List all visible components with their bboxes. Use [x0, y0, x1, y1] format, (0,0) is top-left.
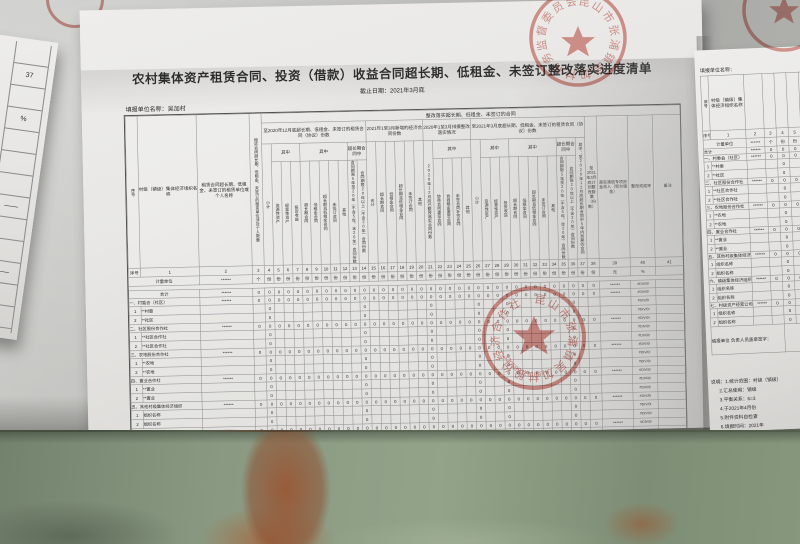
table-cell: 份	[464, 270, 474, 279]
table-cell	[514, 377, 524, 386]
table-cell: 20	[416, 262, 426, 271]
table-cell: 0	[341, 320, 351, 328]
table-cell: 0	[504, 377, 514, 386]
table-cell	[389, 310, 399, 319]
table-cell	[277, 417, 287, 426]
table-cell	[324, 381, 334, 390]
table-cell	[381, 379, 391, 388]
table-cell: 0	[350, 286, 360, 294]
table-cell	[543, 411, 553, 420]
table-cell: 0	[266, 330, 276, 339]
table-cell: 0	[503, 317, 513, 325]
table-cell: 21	[426, 262, 436, 271]
table-cell: 0	[388, 285, 398, 293]
table-cell: 0	[521, 282, 531, 290]
table-cell: 32	[530, 260, 540, 269]
table-cell: 28	[492, 261, 502, 270]
table-cell	[295, 390, 305, 399]
table-cell	[551, 350, 561, 359]
table-cell: 0	[362, 389, 372, 398]
table-cell: 0	[407, 285, 417, 293]
table-cell: 份	[321, 273, 331, 282]
table-cell: 0	[569, 289, 579, 297]
table-cell	[494, 360, 504, 369]
table-cell: 11	[331, 264, 341, 273]
table-cell: 0	[322, 321, 332, 329]
header-cell: 超长期合同中	[556, 137, 575, 155]
table-cell: 0	[418, 345, 428, 353]
table-cell: 0	[476, 377, 486, 386]
table-cell	[448, 404, 458, 413]
table-cell: 0	[505, 412, 515, 421]
table-cell: 0	[477, 421, 487, 429]
table-cell: 份	[331, 273, 341, 282]
table-cell: 0	[312, 295, 322, 303]
table-cell	[296, 407, 306, 416]
table-cell	[791, 182, 800, 191]
table-cell: 0	[266, 348, 276, 356]
table-cell	[285, 338, 295, 347]
table-cell: 0	[267, 391, 277, 400]
table-cell	[485, 377, 495, 386]
table-cell: 份	[302, 274, 312, 283]
table-cell: 0	[427, 309, 437, 318]
table-cell	[408, 310, 418, 319]
table-cell	[323, 338, 333, 347]
table-cell: 0	[370, 320, 380, 328]
table-cell: 18	[397, 263, 407, 272]
table-cell: 0	[475, 351, 485, 360]
table-cell	[438, 387, 448, 396]
table-cell	[333, 389, 343, 398]
table-cell: 份	[473, 270, 483, 279]
table-cell: 0	[293, 295, 303, 303]
table-cell: 0	[522, 316, 532, 324]
table-cell	[322, 303, 332, 312]
table-cell	[342, 354, 352, 363]
table-cell: 17	[388, 263, 398, 272]
table-cell: 0	[521, 290, 531, 298]
table-cell	[285, 364, 295, 373]
table-cell	[343, 380, 353, 389]
table-cell	[561, 376, 571, 385]
table-cell	[352, 354, 362, 363]
table-cell: 0	[464, 284, 474, 292]
table-cell	[333, 354, 343, 363]
table-cell: 0	[484, 343, 494, 351]
table-cell	[408, 336, 418, 345]
table-cell: 0	[371, 398, 381, 406]
table-cell	[370, 337, 380, 346]
table-cell	[448, 413, 458, 422]
table-cell: 份	[350, 273, 360, 282]
table-cell	[562, 411, 572, 420]
table-cell: 0	[313, 347, 323, 355]
table-cell	[295, 381, 305, 390]
table-cell	[371, 380, 381, 389]
table-cell	[342, 328, 352, 337]
table-cell: 16	[378, 263, 388, 272]
table-cell	[409, 379, 419, 388]
table-cell	[552, 376, 562, 385]
table-cell: 0	[457, 396, 467, 404]
table-cell: 份	[407, 271, 417, 280]
table-cell: 0	[504, 386, 514, 395]
table-cell: 0	[352, 372, 362, 380]
table-cell: 份	[445, 271, 455, 280]
table-cell: 0	[561, 368, 571, 376]
header-cell: 其中	[271, 143, 300, 162]
table-cell: 0	[438, 396, 448, 404]
table-cell	[794, 265, 800, 274]
table-cell	[285, 329, 295, 338]
table-cell: 0	[445, 292, 455, 300]
table-cell: 0	[324, 399, 334, 407]
table-cell: 0	[379, 285, 389, 293]
table-cell	[370, 311, 380, 320]
table-cell: 0	[369, 286, 379, 294]
header-cell: 至2021年3月底超长期、低租金、未签订的租赁合同（协议）份数	[470, 116, 584, 139]
table-cell	[791, 191, 800, 200]
table-cell: 0	[409, 397, 419, 405]
table-cell: 份	[274, 274, 284, 283]
table-cell: 0	[551, 368, 561, 376]
table-cell	[380, 353, 390, 362]
table-cell: 0	[294, 321, 304, 329]
table-cell: 0	[429, 413, 439, 422]
table-cell: 0	[333, 398, 343, 406]
table-cell	[313, 338, 323, 347]
table-cell: 0	[379, 319, 389, 327]
table-cell: 0	[342, 372, 352, 380]
table-cell: 0	[541, 342, 551, 350]
table-cell	[380, 362, 390, 371]
table-cell	[437, 361, 447, 370]
table-cell	[275, 330, 285, 339]
table-cell	[493, 299, 503, 308]
table-cell: 0	[360, 311, 370, 320]
table-cell	[590, 401, 602, 410]
table-cell	[380, 336, 390, 345]
table-cell	[286, 407, 296, 416]
table-cell	[590, 375, 602, 384]
table-cell: 0	[398, 293, 408, 301]
table-cell: 23	[445, 262, 455, 271]
table-cell	[371, 354, 381, 363]
table-cell	[277, 408, 287, 417]
table-cell	[796, 305, 800, 314]
table-cell: 0	[341, 286, 351, 294]
table-cell	[390, 379, 400, 388]
table-cell	[467, 404, 477, 413]
table-cell	[589, 349, 601, 358]
table-cell: 0	[569, 306, 579, 315]
table-cell: 25	[464, 261, 474, 270]
table-cell: 份	[426, 271, 436, 280]
table-cell: 0	[559, 290, 569, 298]
table-cell	[495, 386, 505, 395]
table-cell: 0	[360, 294, 370, 302]
table-cell	[353, 415, 363, 424]
table-cell	[322, 312, 332, 321]
table-cell	[323, 329, 333, 338]
table-cell	[312, 303, 322, 312]
table-cell: 0	[475, 325, 485, 334]
table-cell: 0	[408, 319, 418, 327]
table-cell: 7	[293, 265, 303, 274]
table-cell: 0	[265, 296, 275, 304]
table-cell: 0	[398, 319, 408, 327]
table-cell: 0	[285, 347, 295, 355]
table-cell	[276, 365, 286, 374]
table-cell	[303, 303, 313, 312]
table-cell	[513, 360, 523, 369]
table-cell	[533, 402, 543, 411]
table-cell	[531, 324, 541, 333]
table-cell	[390, 362, 400, 371]
table-cell	[792, 216, 800, 225]
table-cell: 1	[130, 333, 142, 342]
table-cell: 35	[559, 259, 569, 268]
table-cell: 0	[274, 288, 284, 296]
table-cell	[0, 237, 23, 264]
table-cell	[315, 407, 325, 416]
table-cell	[581, 410, 591, 419]
table-cell: 27	[483, 261, 493, 270]
table-cell: 1	[131, 385, 143, 394]
table-cell: 0	[542, 368, 552, 376]
table-cell: 0	[580, 367, 590, 375]
table-cell: 份	[293, 274, 303, 283]
table-cell	[295, 355, 305, 364]
header-cell: 至2020年12月底超长期、低租金、未签订的租赁合同（协议）份数	[261, 121, 366, 144]
table-cell	[285, 355, 295, 364]
table-cell: 0	[322, 295, 332, 303]
table-cell	[305, 390, 315, 399]
table-cell: 0	[305, 399, 315, 407]
table-cell: 0	[513, 343, 523, 351]
table-cell: 0	[590, 419, 602, 427]
table-cell	[579, 332, 589, 341]
table-cell: 0	[570, 332, 580, 341]
table-cell: 0	[436, 292, 446, 300]
table-cell	[580, 349, 590, 358]
table-cell	[493, 325, 503, 334]
table-cell	[455, 300, 465, 309]
table-cell	[581, 401, 591, 410]
table-cell: 0	[474, 308, 484, 317]
table-cell: 0	[253, 296, 265, 304]
table-cell: 0	[513, 369, 523, 377]
table-cell: 0	[333, 372, 343, 380]
table-cell: 0	[560, 316, 570, 324]
table-cell: 份	[359, 272, 369, 281]
table-cell	[436, 309, 446, 318]
table-cell: 份	[397, 272, 407, 281]
table-cell: 0	[362, 415, 372, 424]
table-cell	[370, 328, 380, 337]
table-cell	[398, 301, 408, 310]
table-cell: 0	[571, 401, 581, 410]
table-cell	[512, 308, 522, 317]
table-cell	[792, 207, 800, 216]
table-cell	[521, 298, 531, 307]
table-cell: 0	[541, 316, 551, 324]
table-cell: 0	[417, 285, 427, 293]
table-cell: 填报单位 负责人员盖章签字：	[711, 324, 786, 355]
table-cell	[332, 328, 342, 337]
table-cell: 0	[427, 326, 437, 335]
table-cell: 0	[265, 322, 275, 330]
table-cell: 0	[342, 346, 352, 354]
table-cell	[512, 325, 522, 334]
table-cell	[465, 326, 475, 335]
table-cell	[514, 386, 524, 395]
table-cell	[369, 302, 379, 311]
table-cell	[407, 301, 417, 310]
table-cell: 2	[129, 316, 141, 325]
progress-table: 序号村级（镇级）集体经济组织名称租赁合同超长期、低租金、未签订的租赁单位或个人名…	[125, 104, 688, 440]
photo-of-posted-document: 37%———— 农村集体资产租赁合同、投资（借款）收益合同超长期、低租金、未签订…	[0, 0, 800, 544]
table-cell: 0	[390, 371, 400, 379]
table-cell: 0	[475, 334, 485, 343]
table-cell	[400, 379, 410, 388]
table-cell: 0	[360, 302, 370, 311]
table-cell	[438, 378, 448, 387]
table-cell	[304, 329, 314, 338]
table-cell: 0	[379, 293, 389, 301]
table-cell: 0	[505, 421, 515, 429]
table-cell	[542, 359, 552, 368]
table-cell	[493, 308, 503, 317]
table-cell	[314, 355, 324, 364]
table-cell	[255, 382, 267, 391]
table-cell: 0	[505, 403, 515, 412]
table-cell	[532, 333, 542, 342]
table-cell	[410, 405, 420, 414]
table-cell: 0	[362, 398, 372, 406]
table-cell: 0	[467, 422, 477, 430]
table-cell	[286, 390, 296, 399]
table-cell	[466, 387, 476, 396]
table-cell: 0	[476, 386, 486, 395]
table-cell: 0	[417, 293, 427, 301]
header-cell: 落实清退专项资金收入（积欠租金）	[596, 115, 630, 258]
table-cell: 0	[494, 369, 504, 377]
table-cell	[399, 327, 409, 336]
progress-table-wrap: 序号村级（镇级）集体经济组织名称租赁合同超长期、低租金、未签订的租赁单位或个人名…	[124, 103, 689, 440]
table-cell: 0	[351, 320, 361, 328]
table-cell	[314, 364, 324, 373]
table-cell	[334, 415, 344, 424]
table-cell	[313, 312, 323, 321]
table-cell	[400, 405, 410, 414]
table-cell: 0	[437, 370, 447, 378]
table-cell	[437, 326, 447, 335]
table-cell	[465, 309, 475, 318]
table-cell	[399, 353, 409, 362]
table-cell	[457, 413, 467, 422]
table-cell	[0, 216, 26, 243]
table-cell	[276, 382, 286, 391]
table-cell: 0	[578, 281, 588, 289]
table-cell	[588, 297, 600, 306]
table-cell: 0	[360, 320, 370, 328]
table-cell	[464, 300, 474, 309]
table-cell	[532, 350, 542, 359]
table-cell: 0	[580, 393, 590, 401]
header-cell: 其中	[509, 138, 557, 157]
table-cell: 0	[428, 352, 438, 361]
table-cell	[456, 326, 466, 335]
table-cell: 0	[493, 317, 503, 325]
table-cell: 4	[264, 265, 274, 274]
table-cell: 0	[562, 420, 572, 428]
table-cell	[254, 339, 266, 348]
table-cell	[533, 411, 543, 420]
table-cell: 0	[552, 394, 562, 402]
header-cell: 村级（镇级）集体经济组织名称	[708, 74, 745, 130]
table-cell: 份	[388, 272, 398, 281]
table-cell: 0	[504, 395, 514, 403]
table-cell: 0	[400, 397, 410, 405]
table-cell: 份	[435, 271, 445, 280]
table-cell	[494, 351, 504, 360]
table-cell	[293, 303, 303, 312]
table-cell: 份	[454, 270, 464, 279]
header-cell: 其中	[300, 142, 348, 161]
table-cell: 0	[540, 282, 550, 290]
table-cell	[485, 360, 495, 369]
table-cell	[524, 411, 534, 420]
table-cell: 0	[569, 323, 579, 332]
table-cell: 0	[296, 399, 306, 407]
table-cell	[304, 355, 314, 364]
table-cell	[294, 312, 304, 321]
table-cell	[552, 402, 562, 411]
table-cell	[447, 387, 457, 396]
table-cell	[353, 406, 363, 415]
table-cell: 0	[571, 375, 581, 384]
table-cell	[560, 307, 570, 316]
table-cell: 0	[294, 347, 304, 355]
table-cell	[332, 337, 342, 346]
table-cell	[795, 280, 800, 289]
table-cell: 0	[466, 370, 476, 378]
table-cell: 0	[253, 288, 265, 296]
table-cell: 2	[131, 394, 143, 403]
table-cell	[323, 355, 333, 364]
table-cell: 份	[483, 270, 493, 279]
table-cell	[372, 406, 382, 415]
table-cell: 0	[265, 313, 275, 322]
table-cell: 0	[550, 316, 560, 324]
table-cell: 0	[466, 396, 476, 404]
table-cell: 0	[265, 288, 275, 296]
table-cell	[341, 311, 351, 320]
right-sheet-notes: 说明：1.统计范围：村级（镇级）2.汇总使用：镇级3.平衡关系：6=34.于20…	[711, 373, 800, 432]
table-cell	[314, 381, 324, 390]
table-cell: 0	[266, 356, 276, 365]
table-cell: 0	[303, 321, 313, 329]
table-cell: 0	[417, 319, 427, 327]
table-cell: 份	[283, 274, 293, 283]
table-cell: 0	[312, 287, 322, 295]
table-cell: 2	[130, 342, 142, 351]
table-cell: 0	[284, 295, 294, 303]
table-cell: 0	[303, 287, 313, 295]
table-cell: 0	[266, 374, 276, 382]
